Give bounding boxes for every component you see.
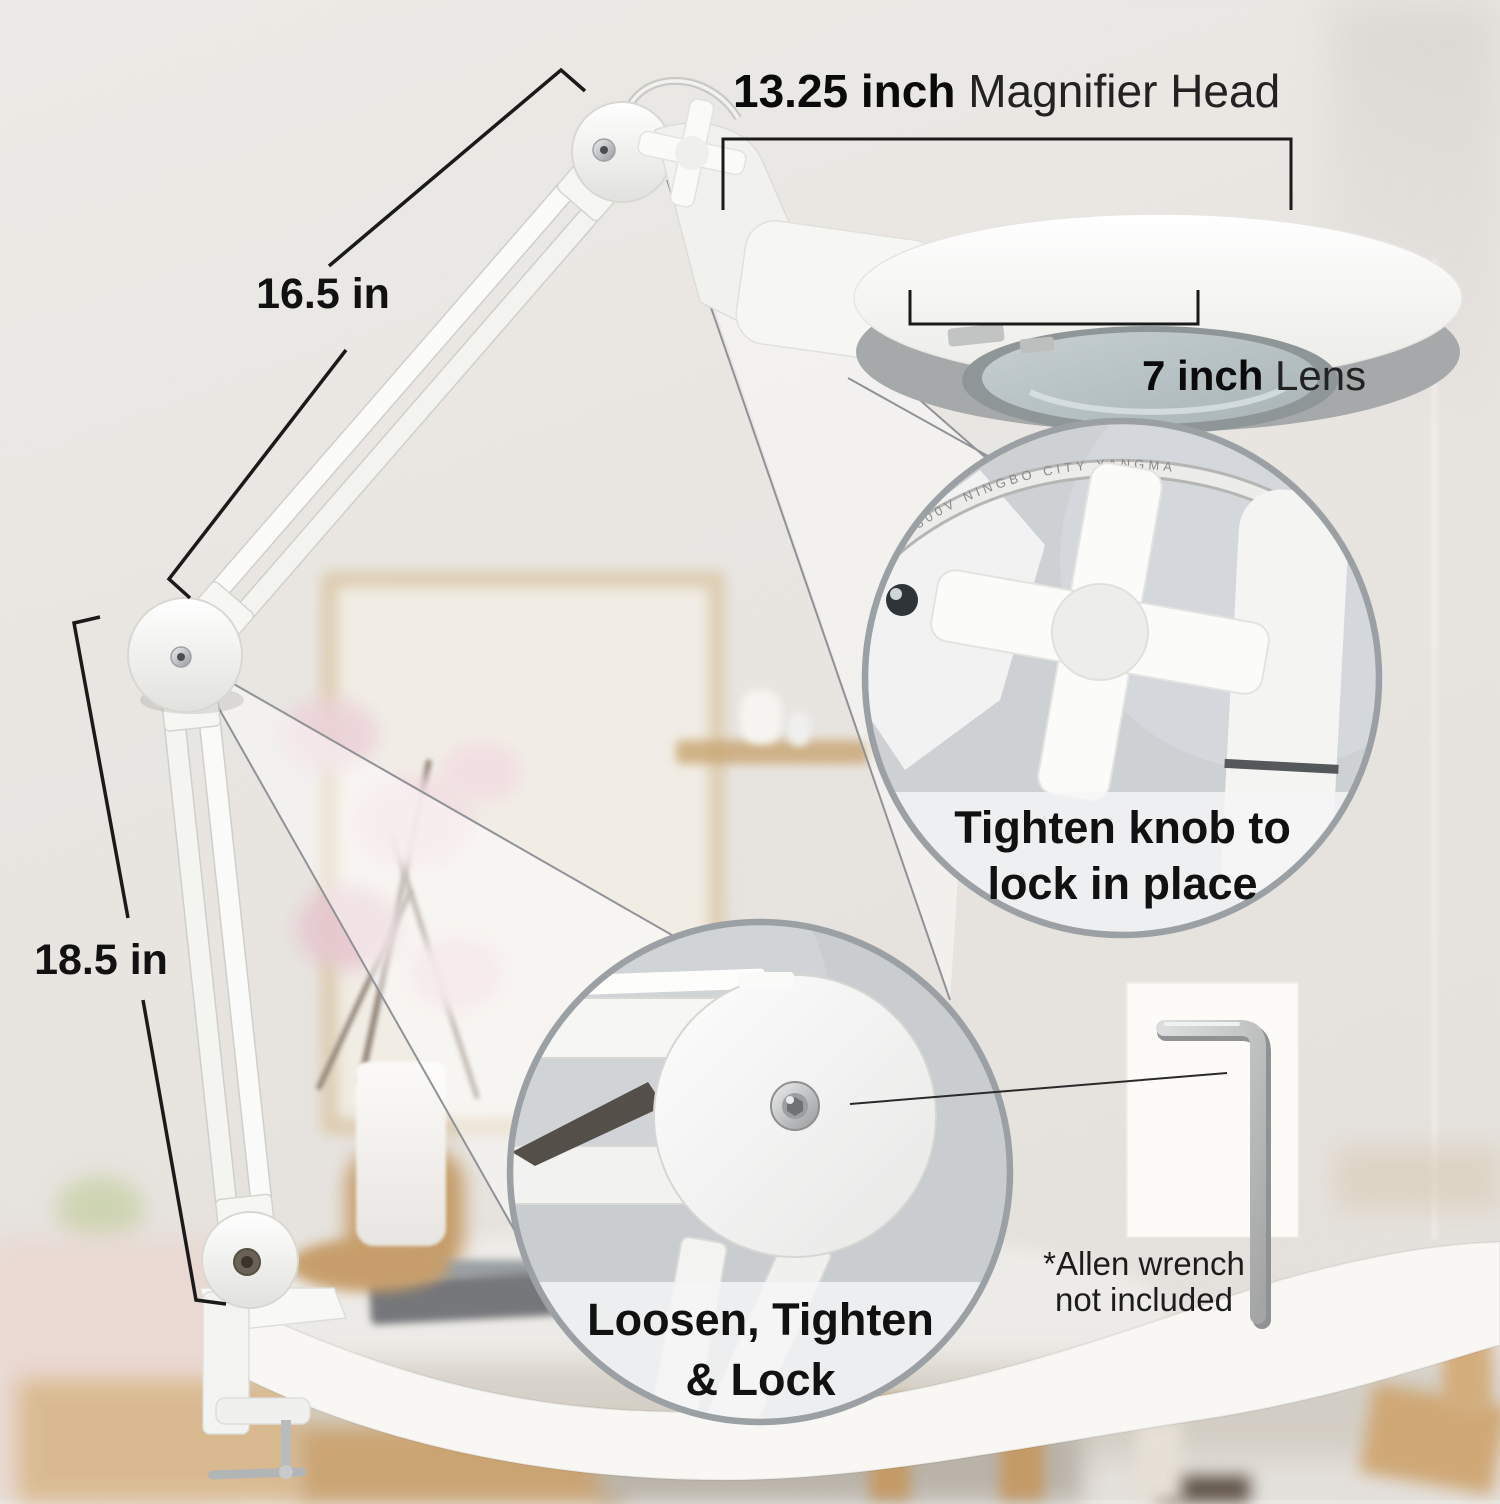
lens-dimension-label: 7 inch Lens [1142, 352, 1366, 400]
allen-wrench-note: *Allen wrench not included [1038, 1246, 1250, 1318]
head-dimension-caption: Magnifier Head [968, 65, 1280, 117]
lower-arm-dimension-label: 18.5 in [20, 936, 182, 985]
head-width-bracket [723, 139, 1291, 210]
upper-arm-dim-line [169, 70, 585, 598]
upper-arm-dimension-label: 16.5 in [238, 270, 408, 319]
head-dimension-value: 13.25 inch [733, 65, 955, 117]
elbow-callout-line2: & Lock [512, 1350, 1009, 1410]
lamp-illustration: 300V NINGBO CITY YANGMA [0, 0, 1500, 1500]
knob-callout-text: Tighten knob to lock in place [870, 800, 1375, 912]
knob-callout-line2: lock in place [870, 856, 1375, 912]
product-infographic: { "annotations": { "head": {"value": "13… [0, 0, 1500, 1500]
knob-callout-line1: Tighten knob to [870, 800, 1375, 856]
lens-dimension-caption: Lens [1275, 352, 1366, 399]
upper-arm [158, 130, 646, 680]
head-dimension-label: 13.25 inch Magnifier Head [733, 64, 1280, 118]
lens-dimension-value: 7 inch [1142, 352, 1263, 399]
elbow-joint [128, 598, 244, 714]
elbow-callout-text: Loosen, Tighten & Lock [512, 1290, 1009, 1410]
allen-note-line2: not included [1038, 1282, 1250, 1318]
allen-note-line1: *Allen wrench [1038, 1246, 1250, 1282]
elbow-callout-line1: Loosen, Tighten [512, 1290, 1009, 1350]
